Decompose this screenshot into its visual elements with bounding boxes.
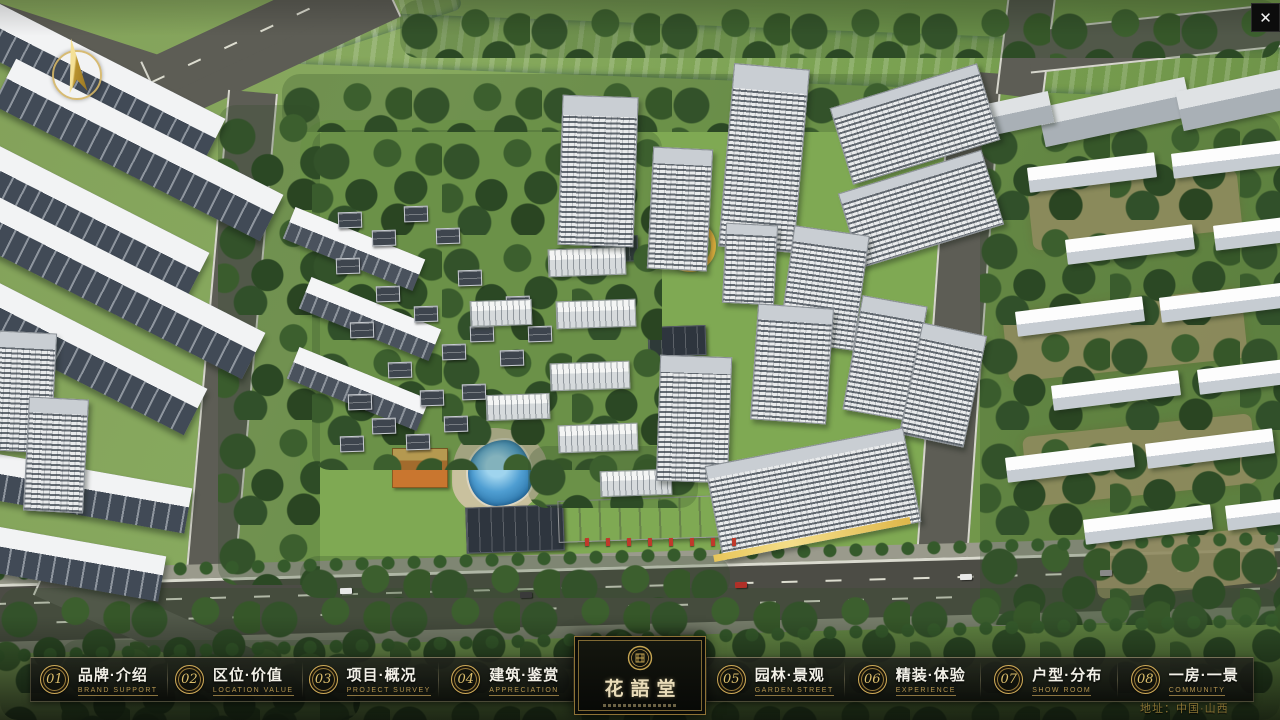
menu-label-en: SHOW ROOM (1032, 687, 1091, 696)
mid-rise-building (548, 247, 627, 278)
menu-label-en: APPRECIATION (489, 687, 559, 696)
close-icon: ✕ (1259, 9, 1272, 27)
car (735, 582, 747, 588)
mid-rise-building (550, 361, 631, 392)
menu-badge-01: 01 (40, 665, 69, 694)
menu-badge-02: 02 (175, 665, 204, 694)
courtyard-home (444, 416, 469, 433)
menu-item-architecture[interactable]: 04 建筑·鉴赏 APPRECIATION (438, 658, 574, 701)
courtyard-home (458, 270, 483, 287)
nav-panel-right: 05 园林·景观 GARDEN STREET 06 精装·体验 EXPERIEN… (706, 657, 1254, 702)
menu-label-en: BRAND SUPPORT (78, 687, 158, 696)
mid-rise-building (556, 299, 637, 330)
menu-label-zh: 园林·景观 (755, 664, 825, 685)
entrance-flag (669, 538, 673, 546)
courtyard-home (406, 434, 431, 451)
menu-label-zh: 户型·分布 (1032, 664, 1102, 685)
menu-label-en: PROJECT SURVEY (347, 687, 431, 696)
courtyard-home (470, 326, 495, 343)
menu-badge-05: 05 (717, 665, 746, 694)
entrance-flag (690, 538, 694, 546)
courtyard-home (340, 436, 365, 453)
residential-tower (647, 147, 713, 272)
menu-item-brand[interactable]: 01 品牌·介绍 BRAND SUPPORT (31, 658, 167, 701)
courtyard-home (388, 362, 413, 379)
courtyard-home (372, 230, 397, 247)
courtyard-home (348, 394, 373, 411)
project-address: 地址：中国·山西 (1140, 700, 1229, 716)
entrance-flag (606, 538, 610, 546)
close-button[interactable]: ✕ (1251, 3, 1280, 32)
car (340, 588, 352, 594)
residential-tower (722, 223, 778, 306)
app-window: ✕ 01 品牌·介绍 BRAND SUPPORT 02 区位·价值 LOCATI… (0, 0, 1280, 720)
menu-label-en: GARDEN STREET (755, 687, 834, 696)
menu-badge-08: 08 (1131, 665, 1160, 694)
menu-item-project[interactable]: 03 项目·概况 PROJECT SURVEY (302, 658, 438, 701)
entrance-flag (585, 538, 589, 546)
entrance-flag (711, 538, 715, 546)
menu-label-zh: 区位·价值 (213, 664, 283, 685)
menu-item-floorplan[interactable]: 07 户型·分布 SHOW ROOM (980, 658, 1117, 701)
brand-logo-panel[interactable]: 花語堂 (574, 636, 706, 715)
nav-panel-left: 01 品牌·介绍 BRAND SUPPORT 02 区位·价值 LOCATION… (30, 657, 574, 702)
menu-label-zh: 一房·一景 (1169, 664, 1239, 685)
seal-icon (627, 645, 653, 671)
residential-tower (23, 397, 89, 514)
courtyard-home (462, 384, 487, 401)
courtyard-home (350, 322, 375, 339)
mid-rise-building (470, 299, 533, 327)
menu-label-en: COMMUNITY (1169, 687, 1226, 696)
menu-label-zh: 精装·体验 (896, 664, 966, 685)
menu-item-view[interactable]: 08 一房·一景 COMMUNITY (1117, 658, 1254, 701)
menu-label-zh: 建筑·鉴赏 (489, 664, 559, 685)
menu-badge-06: 06 (858, 665, 887, 694)
residential-tower (557, 95, 638, 248)
courtyard-home (376, 286, 401, 303)
menu-label-zh: 品牌·介绍 (78, 664, 148, 685)
menu-label-en: EXPERIENCE (896, 687, 956, 696)
menu-badge-07: 07 (994, 665, 1023, 694)
menu-badge-03: 03 (309, 665, 338, 694)
courtyard-home (404, 206, 429, 223)
courtyard-home (528, 326, 553, 343)
courtyard-home (436, 228, 461, 245)
car (960, 574, 972, 580)
entrance-flag (627, 538, 631, 546)
brand-subtitle-line (603, 704, 677, 707)
courtyard-home (420, 390, 445, 407)
mid-rise-building (558, 423, 639, 454)
top-shade (0, 0, 1280, 36)
entrance-flag (648, 538, 652, 546)
courtyard-home (442, 344, 467, 361)
masterplan-3d-view[interactable] (0, 0, 1280, 720)
entrance-flag (732, 538, 736, 546)
menu-label-zh: 项目·概况 (347, 664, 417, 685)
courtyard-home (372, 418, 397, 435)
car (520, 592, 532, 598)
courtyard-home (500, 350, 525, 367)
compass (46, 36, 106, 100)
courtyard-home (414, 306, 439, 323)
menu-label-en: LOCATION VALUE (213, 687, 294, 696)
courtyard-home (338, 212, 363, 229)
menu-item-garden[interactable]: 05 园林·景观 GARDEN STREET (707, 658, 844, 701)
brand-title: 花語堂 (597, 674, 682, 701)
menu-item-location[interactable]: 02 区位·价值 LOCATION VALUE (167, 658, 303, 701)
residential-tower (750, 303, 834, 424)
menu-item-interior[interactable]: 06 精装·体验 EXPERIENCE (844, 658, 981, 701)
courtyard-pavilion (465, 504, 565, 553)
menu-badge-04: 04 (451, 665, 480, 694)
courtyard-home (336, 258, 361, 275)
car (1100, 570, 1112, 576)
mid-rise-building (486, 393, 551, 421)
